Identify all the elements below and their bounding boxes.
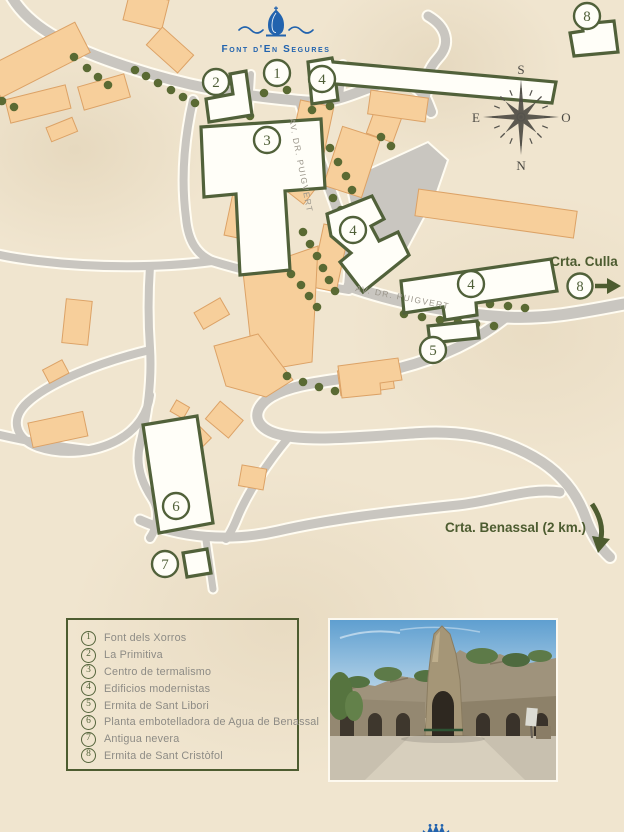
photo-font-dels-xorros xyxy=(328,618,558,782)
svg-text:4: 4 xyxy=(318,72,326,88)
culla-marker: 8 xyxy=(568,274,593,299)
fountain-logo-icon xyxy=(236,6,316,38)
map-marker-4a: 4 xyxy=(309,66,335,92)
legend-item-label: Ermita de Sant Libori xyxy=(104,700,209,712)
legend-item: 2 La Primitiva xyxy=(81,647,297,664)
compass-west: O xyxy=(561,110,570,125)
compass-east: E xyxy=(472,110,480,125)
legend-item: 8 Ermita de Sant Cristòfol xyxy=(81,748,297,765)
site-logo: Font d'En Segures xyxy=(196,6,356,55)
legend-item-number: 4 xyxy=(81,681,96,696)
legend-item: 1 Font dels Xorros xyxy=(81,630,297,647)
legend-item-number: 8 xyxy=(81,748,96,763)
svg-text:4: 4 xyxy=(349,223,357,239)
map-marker-3: 3 xyxy=(254,127,280,153)
town-map: AV. DR. PUIGVERT AV. DR. PUIGVERT Crta. … xyxy=(0,0,624,620)
map-page: AV. DR. PUIGVERT AV. DR. PUIGVERT Crta. … xyxy=(0,0,624,832)
road-label-crta-culla: Crta. Culla xyxy=(550,254,618,269)
map-marker-1: 1 xyxy=(264,60,290,86)
svg-text:5: 5 xyxy=(429,343,437,359)
map-marker-2: 2 xyxy=(203,69,229,95)
svg-text:1: 1 xyxy=(273,66,281,82)
svg-text:8: 8 xyxy=(583,9,591,25)
map-marker-4b: 4 xyxy=(340,217,366,243)
map-marker-6: 6 xyxy=(163,493,189,519)
svg-text:3: 3 xyxy=(263,133,271,149)
map-marker-8: 8 xyxy=(574,3,600,29)
compass-south: S xyxy=(517,62,524,77)
culla-arrow-icon xyxy=(595,278,621,294)
legend-item: 7 Antigua nevera xyxy=(81,731,297,748)
legend-item: 3 Centro de termalismo xyxy=(81,664,297,681)
legend-item-label: Centro de termalismo xyxy=(104,666,211,678)
legend-item-number: 1 xyxy=(81,631,96,646)
legend-item: 4 Edificios modernistas xyxy=(81,680,297,697)
map-marker-5: 5 xyxy=(420,337,446,363)
road-label-crta-benassal: Crta. Benassal (2 km.) xyxy=(445,520,586,535)
crown-icon xyxy=(421,824,451,832)
site-logo-title: Font d'En Segures xyxy=(196,44,356,55)
legend-item-label: Planta embotelladora de Agua de Benassal xyxy=(104,716,319,728)
map-marker-4c: 4 xyxy=(458,271,484,297)
legend-item-number: 6 xyxy=(81,715,96,730)
legend-box: 1 Font dels Xorros 2 La Primitiva 3 Cent… xyxy=(66,618,299,771)
svg-text:4: 4 xyxy=(467,277,475,293)
landmark-building-antigua-nevera xyxy=(183,549,211,577)
legend-item-label: Ermita de Sant Cristòfol xyxy=(104,750,223,762)
legend-item-number: 5 xyxy=(81,698,96,713)
legend-item-label: Antigua nevera xyxy=(104,733,179,745)
compass-north: N xyxy=(516,158,526,173)
legend-item-label: Font dels Xorros xyxy=(104,632,186,644)
legend-item: 6 Planta embotelladora de Agua de Benass… xyxy=(81,714,297,731)
legend-item: 5 Ermita de Sant Libori xyxy=(81,697,297,714)
legend-item-number: 7 xyxy=(81,732,96,747)
svg-text:6: 6 xyxy=(172,499,180,515)
legend-item-number: 2 xyxy=(81,648,96,663)
legend-item-label: Edificios modernistas xyxy=(104,683,210,695)
culla-marker-number: 8 xyxy=(576,279,583,295)
legend-item-number: 3 xyxy=(81,664,96,679)
svg-text:7: 7 xyxy=(161,557,169,573)
legend-item-label: La Primitiva xyxy=(104,649,163,661)
svg-text:2: 2 xyxy=(212,75,220,91)
map-marker-7: 7 xyxy=(152,551,178,577)
